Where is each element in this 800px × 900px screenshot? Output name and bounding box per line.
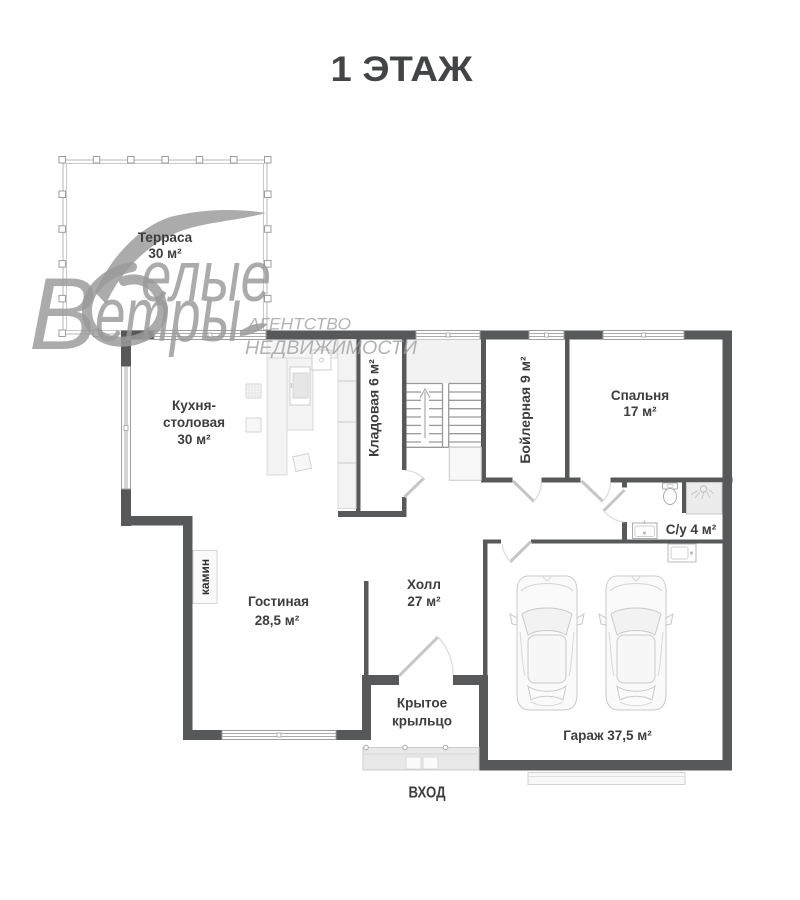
svg-text:С/у 4 м²: С/у 4 м²	[666, 522, 717, 537]
svg-text:Гостиная: Гостиная	[248, 594, 309, 609]
svg-text:Бойлерная 9 м²: Бойлерная 9 м²	[517, 356, 533, 464]
svg-text:крыльцо: крыльцо	[392, 714, 452, 729]
svg-text:АГЕНТСТВО: АГЕНТСТВО	[247, 315, 351, 334]
svg-text:17 м²: 17 м²	[623, 404, 657, 419]
svg-text:Гараж 37,5 м²: Гараж 37,5 м²	[563, 728, 652, 743]
svg-text:камин: камин	[198, 559, 212, 595]
svg-text:30 м²: 30 м²	[148, 246, 182, 261]
svg-text:Холл: Холл	[407, 577, 441, 592]
svg-text:Кладовая 6 м²: Кладовая 6 м²	[366, 359, 382, 457]
svg-text:НЕДВИЖИМОСТИ: НЕДВИЖИМОСТИ	[245, 337, 417, 359]
svg-text:28,5 м²: 28,5 м²	[255, 613, 300, 628]
svg-text:27 м²: 27 м²	[407, 594, 441, 609]
svg-text:столовая: столовая	[163, 415, 225, 430]
svg-text:В: В	[29, 257, 97, 371]
svg-text:етры: етры	[95, 273, 241, 358]
svg-text:Кухня-: Кухня-	[172, 398, 216, 413]
svg-text:ВХОД: ВХОД	[409, 785, 446, 802]
svg-text:1 ЭТАЖ: 1 ЭТАЖ	[331, 50, 473, 89]
svg-text:Спальня: Спальня	[611, 388, 669, 403]
svg-text:30 м²: 30 м²	[177, 432, 211, 447]
svg-text:Терраса: Терраса	[138, 230, 193, 245]
svg-text:Крытое: Крытое	[397, 696, 448, 711]
